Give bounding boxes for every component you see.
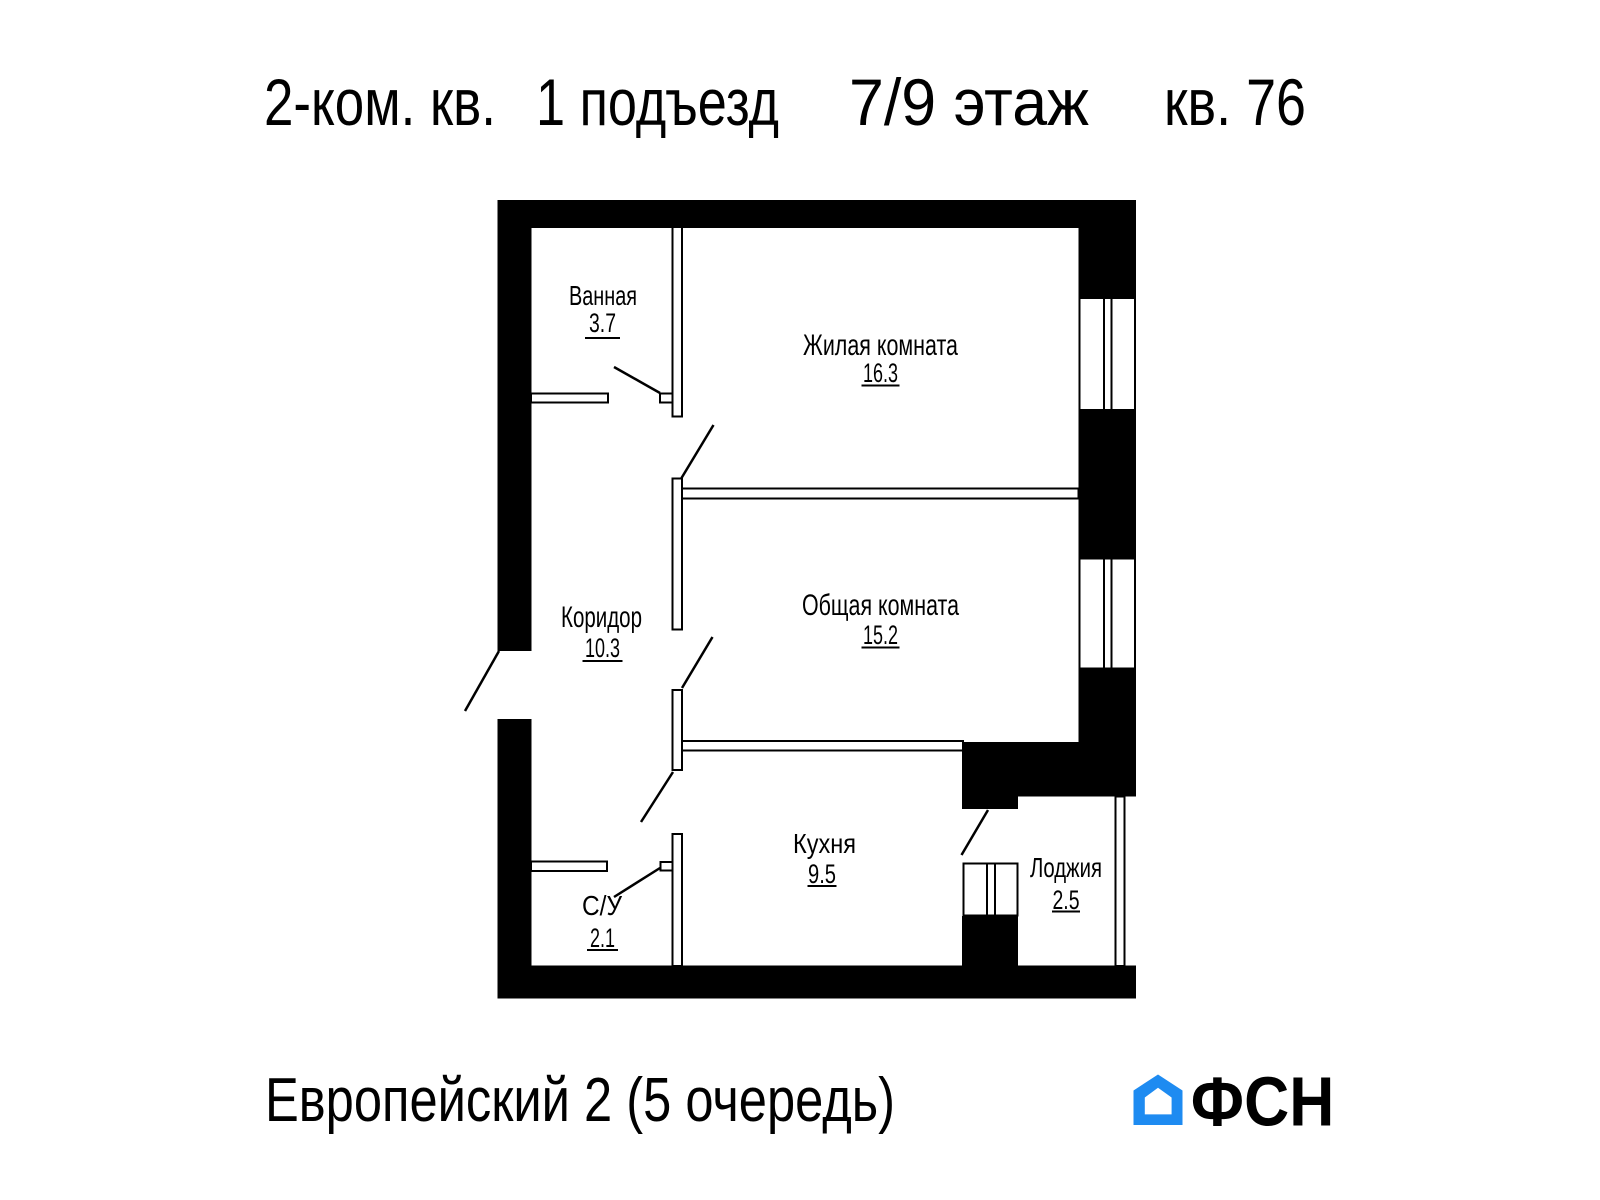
svg-text:Европейский 2 (5 очередь): Европейский 2 (5 очередь) [265, 1066, 895, 1135]
svg-text:16.3: 16.3 [863, 358, 898, 388]
svg-text:15.2: 15.2 [863, 620, 898, 650]
svg-text:3.7: 3.7 [589, 308, 616, 338]
svg-text:7/9 этаж: 7/9 этаж [849, 65, 1089, 139]
svg-text:10.3: 10.3 [585, 633, 620, 663]
svg-text:Ванная: Ванная [569, 280, 637, 311]
svg-text:Кухня: Кухня [793, 828, 856, 859]
svg-text:Лоджия: Лоджия [1030, 852, 1102, 883]
svg-text:ФСН: ФСН [1191, 1063, 1335, 1141]
svg-text:2-ком. кв.: 2-ком. кв. [264, 65, 496, 139]
svg-text:2.1: 2.1 [590, 923, 615, 953]
svg-text:кв. 76: кв. 76 [1164, 65, 1306, 139]
svg-text:С/У: С/У [582, 890, 622, 921]
svg-text:Коридор: Коридор [561, 601, 642, 634]
svg-text:9.5: 9.5 [808, 859, 836, 889]
svg-text:1 подъезд: 1 подъезд [536, 65, 779, 139]
svg-text:Общая комната: Общая комната [802, 589, 959, 622]
